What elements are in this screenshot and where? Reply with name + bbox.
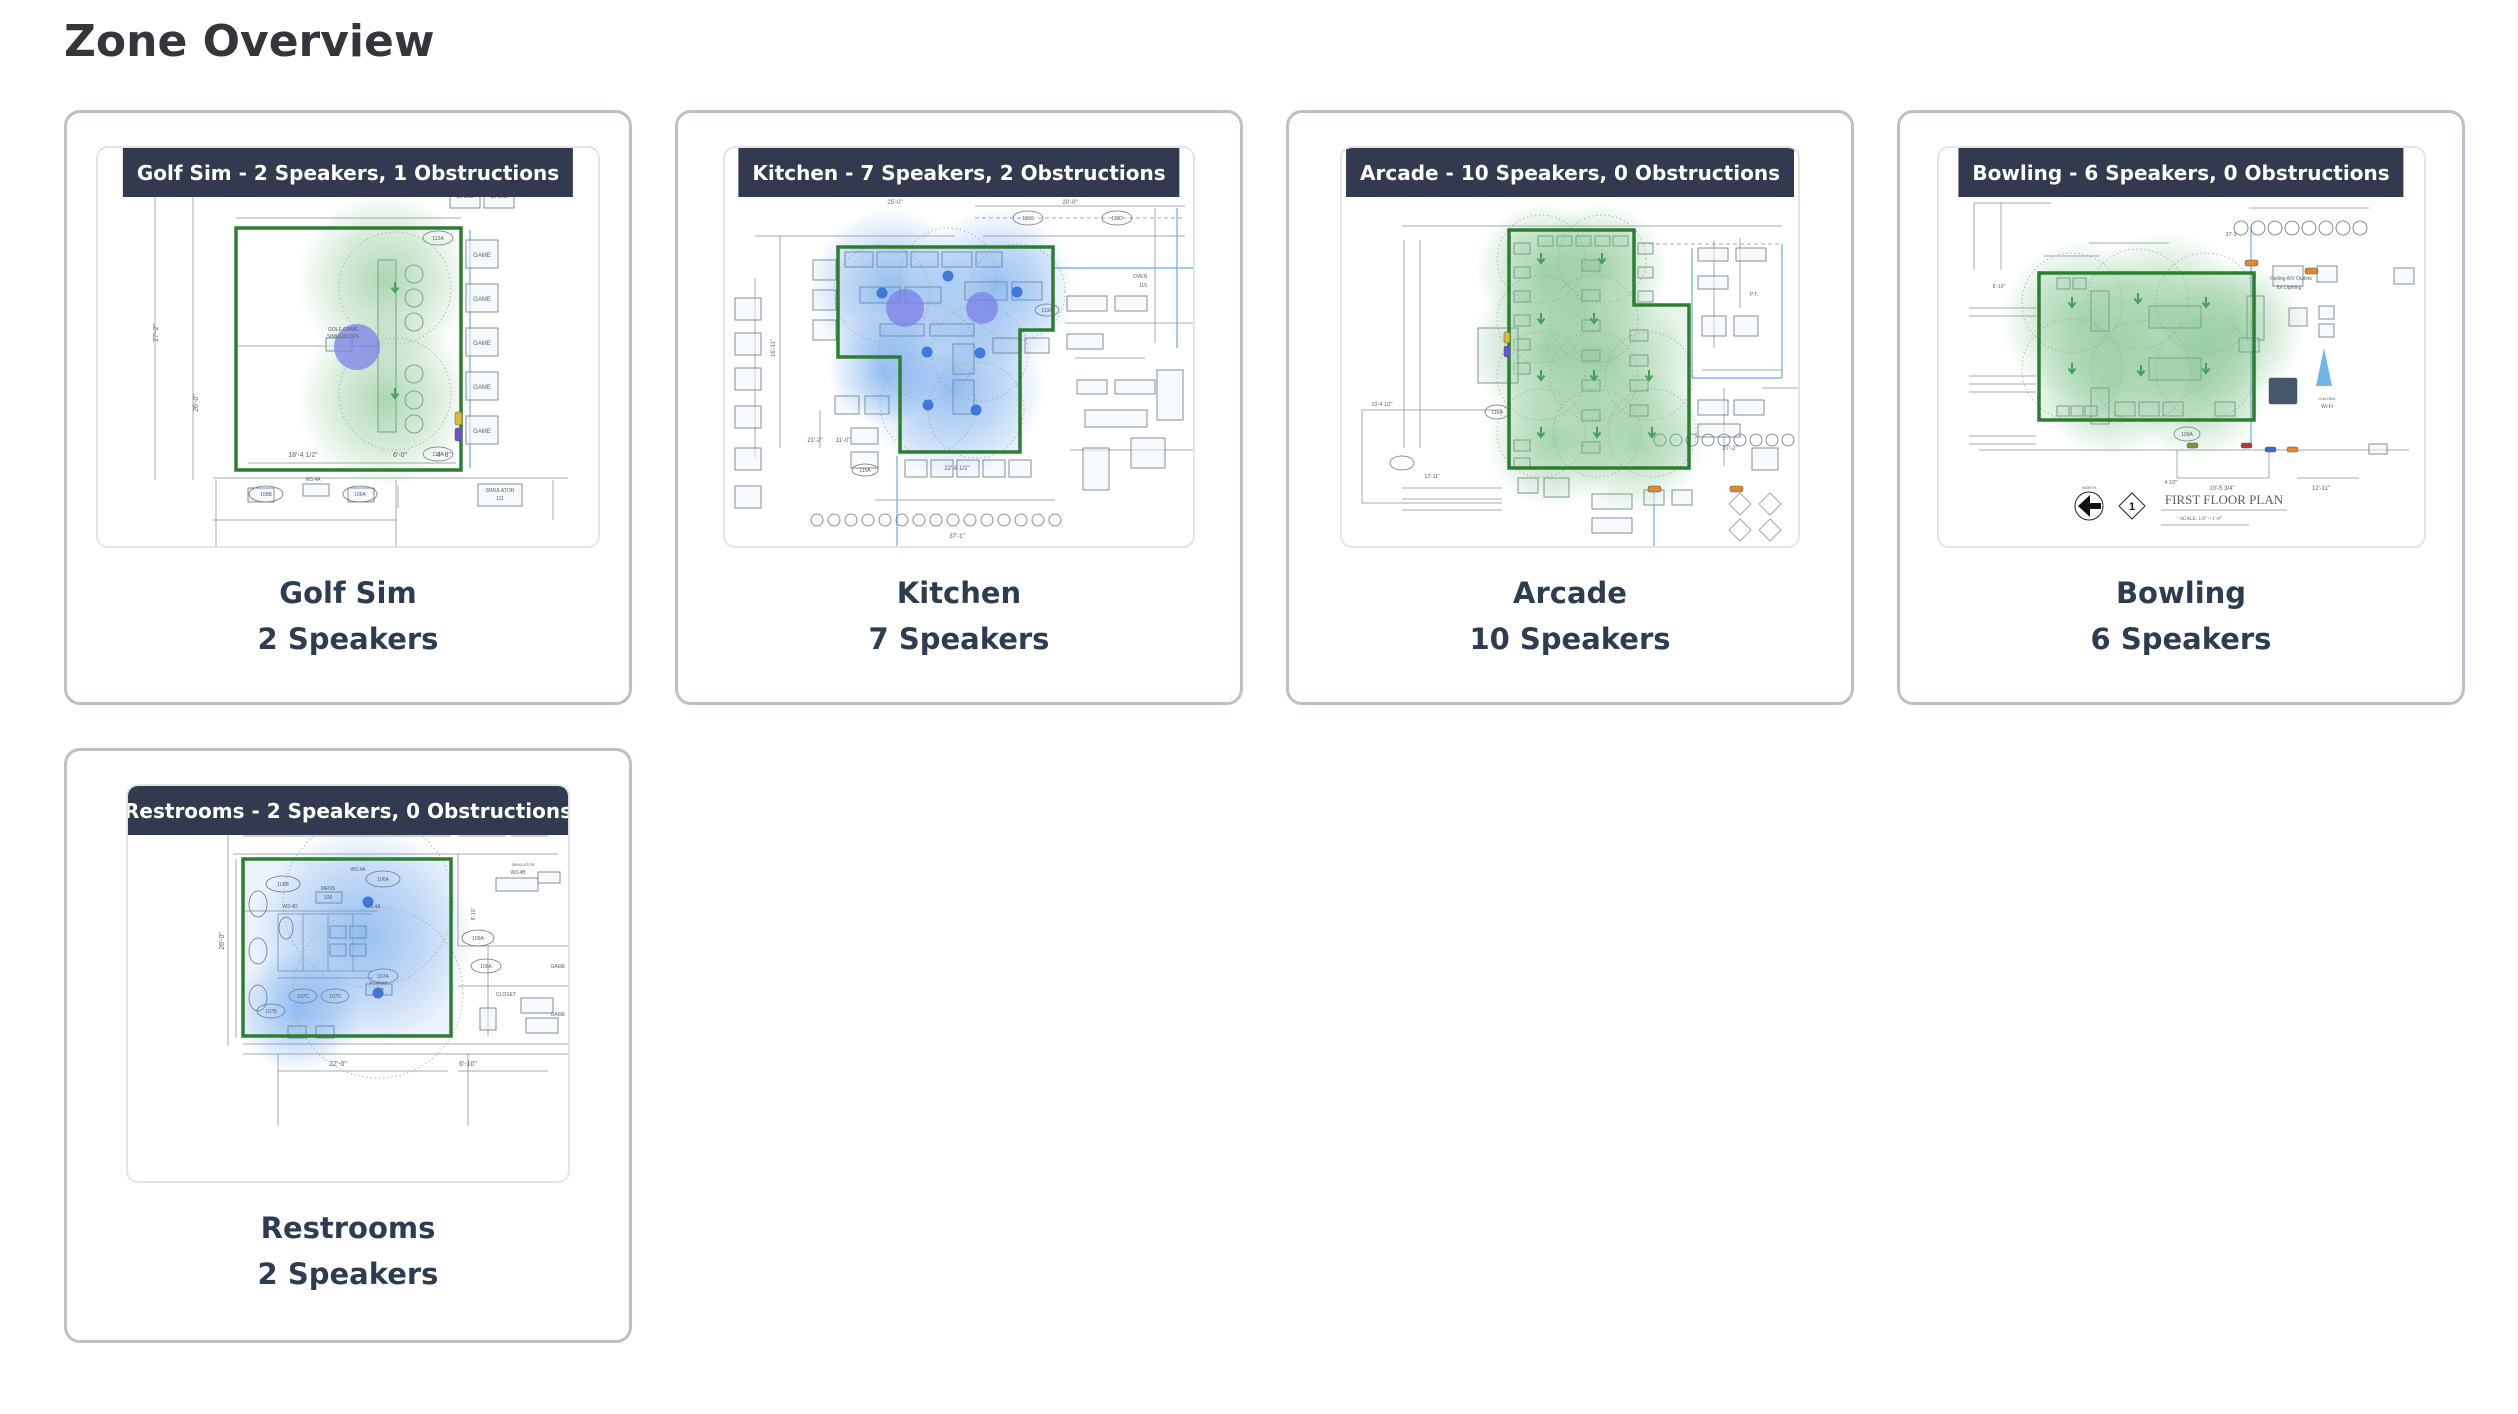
zone-speaker-count: 6 Speakers (2091, 616, 2272, 662)
floorplan-arcade: 20'-0"27'-2"13'-4 1/2"12'-11"P.T.116A (1342, 148, 1798, 546)
svg-text:for Lighting: for Lighting (2276, 285, 2301, 291)
zone-banner: Golf Sim - 2 Speakers, 1 Obstructions (123, 148, 573, 197)
zone-grid: 27'-2"26'-0"18'-4 1/2"6'-0"4'-8"GAMEGAME… (0, 110, 2518, 1343)
svg-text:37'-3: 37'-3 (2225, 232, 2236, 238)
svg-text:115A: 115A (859, 468, 871, 474)
svg-text:W3.4A: W3.4A (350, 867, 366, 873)
zone-name: Golf Sim (258, 570, 439, 616)
svg-text:6'-10": 6'-10" (459, 1061, 477, 1068)
zone-name: Bowling (2091, 570, 2272, 616)
svg-text:27'-2": 27'-2" (1722, 446, 1737, 452)
svg-text:115C: 115C (1022, 216, 1034, 222)
svg-text:8'-10": 8'-10" (471, 908, 477, 921)
zone-banner-label: Restrooms - 2 Speakers, 0 Obstructions (128, 799, 568, 823)
zone-banner-label: Arcade - 10 Speakers, 0 Obstructions (1360, 161, 1780, 185)
zone-card-bowling[interactable]: 1Ceiling A/V Outletsfor LightingCrbt Off… (1897, 110, 2465, 705)
svg-text:20'-0": 20'-0" (1062, 200, 1077, 206)
svg-text:106A: 106A (480, 964, 492, 970)
svg-text:W3.4A: W3.4A (365, 904, 381, 910)
svg-text:25'-0": 25'-0" (887, 200, 902, 206)
svg-text:110A: 110A (432, 452, 444, 458)
svg-text:109A: 109A (2181, 432, 2193, 438)
floorplan-bowling: 1Ceiling A/V Outletsfor LightingCrbt Off… (1939, 148, 2424, 546)
svg-text:11'-0": 11'-0" (836, 438, 851, 444)
svg-text:115: 115 (1139, 283, 1147, 289)
zone-banner: Arcade - 10 Speakers, 0 Obstructions (1346, 148, 1794, 197)
svg-text:26'-0": 26'-0" (219, 932, 226, 950)
svg-text:107: 107 (376, 988, 385, 994)
svg-text:18'-4 1/2": 18'-4 1/2" (288, 452, 318, 459)
svg-text:W3.4D: W3.4D (282, 904, 298, 910)
zone-speaker-count: 2 Speakers (258, 1251, 439, 1297)
svg-text:22'-8 1/2": 22'-8 1/2" (944, 466, 969, 472)
svg-text:GAME: GAME (473, 341, 491, 347)
svg-text:108B: 108B (277, 882, 289, 888)
svg-text:106A: 106A (354, 492, 366, 498)
svg-text:NORTH: NORTH (2081, 485, 2095, 490)
svg-text:37'-1": 37'-1" (949, 534, 964, 540)
svg-text:GAME: GAME (551, 964, 566, 970)
svg-text:FIRST FLOOR PLAN: FIRST FLOOR PLAN (2164, 492, 2283, 507)
zone-card-kitchen[interactable]: 25'-0"20'-0"22'-8 1/2"37'-1"11'-0"21'-2"… (675, 110, 1243, 705)
zone-name: Arcade (1469, 570, 1670, 616)
svg-text:6'-10": 6'-10" (1992, 284, 2005, 290)
zone-banner: Kitchen - 7 Speakers, 2 Obstructions (738, 148, 1179, 197)
zone-banner-label: Bowling - 6 Speakers, 0 Obstructions (1972, 161, 2389, 185)
svg-text:22'-0": 22'-0" (329, 1061, 347, 1068)
svg-text:GAME: GAME (473, 297, 491, 303)
svg-text:GOLF GAME: GOLF GAME (328, 327, 358, 333)
svg-text:GAME: GAME (473, 253, 491, 259)
svg-text:107B: 107B (265, 1009, 277, 1015)
page-title: Zone Overview (64, 18, 2518, 66)
zone-speaker-count: 2 Speakers (258, 616, 439, 662)
zone-plan-frame: 25'-0"20'-0"22'-8 1/2"37'-1"11'-0"21'-2"… (723, 146, 1195, 548)
svg-text:1: 1 (2128, 501, 2134, 513)
zone-banner: Restrooms - 2 Speakers, 0 Obstructions (128, 786, 568, 835)
svg-text:MENS: MENS (321, 886, 336, 892)
svg-text:113A: 113A (1041, 308, 1053, 314)
zone-banner: Bowling - 6 Speakers, 0 Obstructions (1958, 148, 2403, 197)
svg-text:115D: 115D (1111, 216, 1123, 222)
svg-text:116A: 116A (1491, 410, 1503, 416)
zone-name: Restrooms (258, 1205, 439, 1251)
svg-text:108B: 108B (260, 492, 272, 498)
svg-text:P.T.: P.T. (1750, 292, 1758, 298)
svg-text:SIMULATORS: SIMULATORS (327, 334, 360, 340)
zone-plan-frame: 18'-4 1/2"6'-0"4'-8"26'-0"22'-0"6'-10"10… (126, 784, 570, 1183)
zone-caption: Kitchen 7 Speakers (869, 570, 1050, 662)
svg-text:106A: 106A (377, 877, 389, 883)
zone-caption: Arcade 10 Speakers (1469, 570, 1670, 662)
svg-text:109A: 109A (472, 936, 484, 942)
svg-text:13'-4 1/2": 13'-4 1/2" (1371, 402, 1392, 408)
zone-plan-frame: 1Ceiling A/V Outletsfor LightingCrbt Off… (1937, 146, 2426, 548)
svg-text:108: 108 (324, 895, 333, 901)
svg-text:107D: 107D (329, 994, 341, 1000)
svg-text:W3.4B: W3.4B (510, 870, 526, 876)
svg-text:CLOSET: CLOSET (496, 992, 516, 998)
svg-text:26'-0": 26'-0" (193, 394, 200, 412)
svg-text:W3.4A: W3.4A (305, 477, 321, 483)
svg-text:Ceiling A/V Outlets: Ceiling A/V Outlets (2270, 276, 2312, 282)
zone-card-golf-sim[interactable]: 27'-2"26'-0"18'-4 1/2"6'-0"4'-8"GAMEGAME… (64, 110, 632, 705)
zone-caption: Golf Sim 2 Speakers (258, 570, 439, 662)
floorplan-kitchen: 25'-0"20'-0"22'-8 1/2"37'-1"11'-0"21'-2"… (725, 148, 1193, 546)
svg-text:OVEN: OVEN (1133, 274, 1148, 280)
zone-name: Kitchen (869, 570, 1050, 616)
svg-text:Crbt Offcr: Crbt Offcr (2318, 396, 2336, 401)
zone-caption: Bowling 6 Speakers (2091, 570, 2272, 662)
zone-caption: Restrooms 2 Speakers (258, 1205, 439, 1297)
svg-text:SCALE: 1/8" = 1'-0": SCALE: 1/8" = 1'-0" (2180, 517, 2222, 522)
svg-text:12'-11": 12'-11" (2311, 486, 2329, 492)
zone-plan-frame: 20'-0"27'-2"13'-4 1/2"12'-11"P.T.116A Ar… (1340, 146, 1800, 548)
svg-text:112A: 112A (432, 236, 444, 242)
zone-banner-label: Golf Sim - 2 Speakers, 1 Obstructions (137, 161, 559, 185)
svg-text:27'-2": 27'-2" (153, 324, 160, 342)
zone-speaker-count: 10 Speakers (1469, 616, 1670, 662)
svg-text:SIMULATOR: SIMULATOR (486, 488, 515, 494)
zone-card-arcade[interactable]: 20'-0"27'-2"13'-4 1/2"12'-11"P.T.116A Ar… (1286, 110, 1854, 705)
zone-speaker-count: 7 Speakers (869, 616, 1050, 662)
svg-text:12'-11": 12'-11" (1424, 474, 1439, 480)
svg-text:16'-11": 16'-11" (771, 339, 777, 357)
svg-text:GAME: GAME (473, 429, 491, 435)
zone-banner-label: Kitchen - 7 Speakers, 2 Obstructions (752, 161, 1165, 185)
svg-text:GAME: GAME (551, 1012, 566, 1018)
svg-text:21'-2": 21'-2" (807, 438, 822, 444)
svg-text:SIMULATOR: SIMULATOR (512, 862, 535, 867)
zone-plan-frame: 27'-2"26'-0"18'-4 1/2"6'-0"4'-8"GAMEGAME… (96, 146, 600, 548)
svg-text:4 1/2": 4 1/2" (2164, 480, 2177, 486)
floorplan-golf-sim: 27'-2"26'-0"18'-4 1/2"6'-0"4'-8"GAMEGAME… (98, 148, 598, 546)
svg-text:WOMENS: WOMENS (369, 980, 388, 985)
floorplan-restrooms: 18'-4 1/2"6'-0"4'-8"26'-0"22'-0"6'-10"10… (128, 786, 568, 1181)
svg-text:111: 111 (496, 496, 504, 502)
svg-text:107C: 107C (297, 994, 309, 1000)
svg-text:Wi-Fi: Wi-Fi (2321, 404, 2333, 410)
svg-text:6'-0": 6'-0" (393, 452, 407, 459)
zone-card-restrooms[interactable]: 18'-4 1/2"6'-0"4'-8"26'-0"22'-0"6'-10"10… (64, 748, 632, 1343)
svg-text:GAME: GAME (473, 385, 491, 391)
